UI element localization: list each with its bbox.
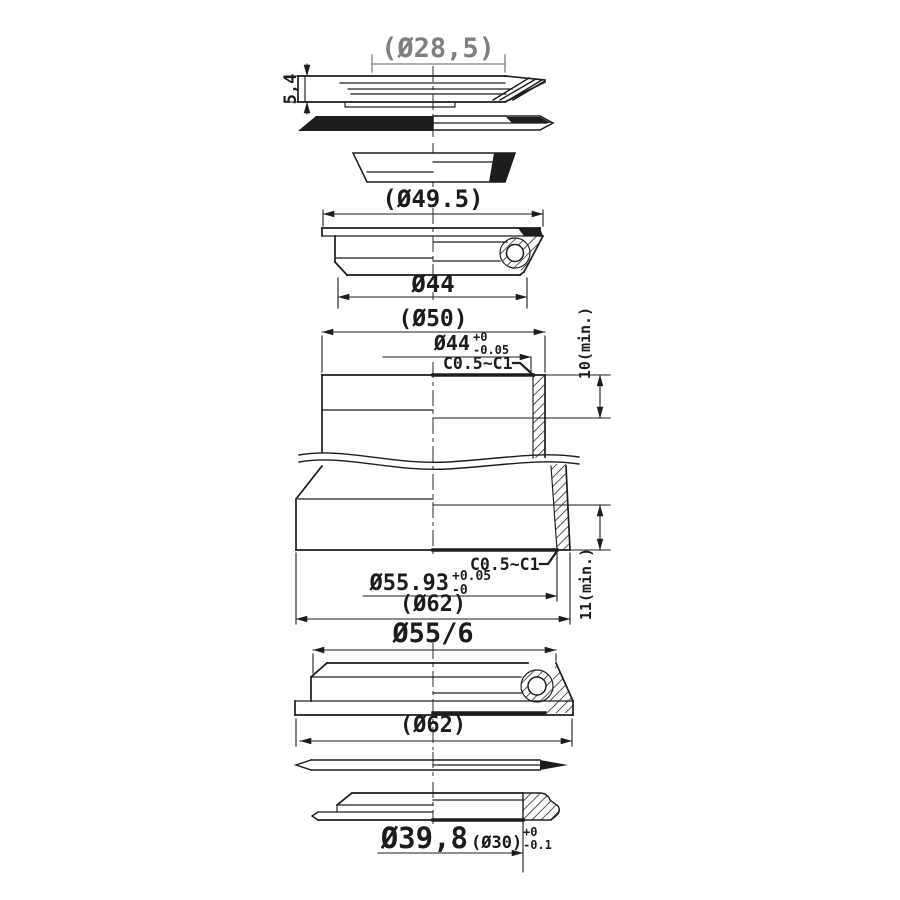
top-cap-part bbox=[298, 76, 545, 107]
insert-depth-lower-dimension: 11(min.) bbox=[577, 505, 600, 620]
race-od-dimension: Ø39,8 (Ø30) +0 -0.1 bbox=[378, 821, 552, 872]
headset-assembly-drawing: 5,4 (Ø28,5) (Ø49.5) bbox=[0, 0, 900, 900]
break-line-lower bbox=[299, 460, 579, 469]
lower-cup-part bbox=[295, 663, 573, 715]
seal-ring-part bbox=[298, 116, 553, 131]
cap-od-label: (Ø28,5) bbox=[381, 33, 495, 64]
insert-depth-lower-label: 11(min.) bbox=[577, 548, 595, 620]
race-tol-minus: -0.1 bbox=[523, 838, 552, 852]
cap-height-label: 5,4 bbox=[281, 74, 301, 105]
technical-drawing-canvas: 5,4 (Ø28,5) (Ø49.5) bbox=[0, 0, 900, 900]
lower-cup-flange-label: (Ø62) bbox=[400, 713, 466, 738]
tube-wall-hatch-upper bbox=[533, 375, 545, 458]
tube-od-bottom-label: (Ø62) bbox=[400, 592, 466, 617]
tube-bore-top-label: Ø44 bbox=[433, 331, 470, 355]
washer-part bbox=[296, 760, 568, 770]
chamfer-upper-label: C0.5~C1 bbox=[443, 354, 513, 373]
upper-cup-bore-label: Ø44 bbox=[410, 270, 454, 298]
insert-depth-upper-label: 10(min.) bbox=[576, 307, 594, 379]
lower-cup-od-label: Ø55/6 bbox=[391, 618, 473, 649]
crown-race-part bbox=[312, 793, 559, 820]
tube-od-top-label: (Ø50) bbox=[398, 306, 467, 332]
lower-cup-od-dimension: Ø55/6 bbox=[313, 618, 556, 673]
compression-ring-part bbox=[353, 153, 515, 182]
cap-height-dimension: 5,4 bbox=[281, 64, 314, 114]
lower-bearing-ball bbox=[528, 677, 546, 695]
race-bore-label: (Ø30) bbox=[471, 833, 522, 853]
lower-cup-flange-dimension: (Ø62) bbox=[296, 713, 572, 746]
cap-od-dimension: (Ø28,5) bbox=[372, 33, 505, 72]
race-od-label: Ø39,8 bbox=[380, 821, 468, 855]
race-tol-plus: +0 bbox=[523, 825, 537, 839]
insert-depth-upper-dimension: 10(min.) bbox=[576, 307, 600, 418]
crown-race-section-hatch bbox=[523, 793, 559, 820]
compression-ring-od-label: (Ø49.5) bbox=[382, 185, 483, 213]
upper-bearing-ball bbox=[507, 245, 524, 262]
tube-bore-top-tol-plus: +0 bbox=[473, 330, 487, 344]
head-tube-part bbox=[296, 375, 610, 550]
tube-bore-bottom-tol-plus: +0.05 bbox=[452, 569, 491, 584]
